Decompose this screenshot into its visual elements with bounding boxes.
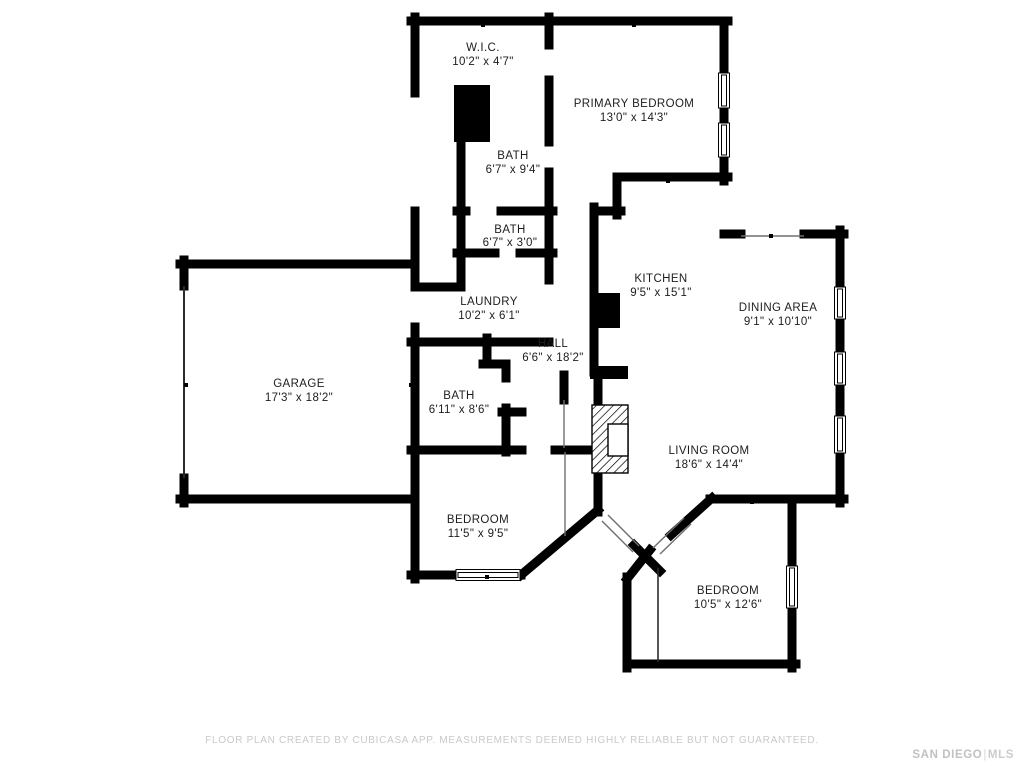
room-label-wic: W.I.C. 10'2" x 4'7"	[452, 42, 513, 68]
tick	[478, 87, 482, 91]
room-name: BATH	[497, 150, 528, 162]
room-dims: 18'6" x 14'4"	[675, 459, 743, 471]
room-dims: 11'5" x 9'5"	[448, 528, 509, 540]
fireplace-icon	[592, 405, 628, 473]
room-label-laundry: LAUNDRY 10'2" x 6'1"	[458, 296, 519, 322]
tick	[465, 450, 469, 454]
tick	[769, 234, 773, 238]
room-label-bedroom-right: BEDROOM 10'5" x 12'6"	[694, 585, 762, 611]
brand-secondary: MLS	[988, 749, 1014, 761]
room-name: GARAGE	[273, 378, 325, 390]
room-name: W.I.C.	[466, 42, 500, 54]
room-name: HALL	[538, 338, 569, 350]
wall-stub-block	[590, 366, 628, 379]
room-name: BATH	[443, 390, 474, 402]
room-name: BEDROOM	[447, 514, 509, 526]
room-dims: 13'0" x 14'3"	[600, 112, 668, 124]
tick	[485, 575, 489, 579]
room-dims: 6'7" x 9'4"	[486, 164, 541, 176]
tick	[296, 495, 300, 499]
room-label-garage: GARAGE 17'3" x 18'2"	[265, 378, 333, 404]
room-name: DINING AREA	[739, 302, 818, 314]
tick	[750, 500, 754, 504]
floor-plan-page: W.I.C. 10'2" x 4'7" PRIMARY BEDROOM 13'0…	[0, 0, 1024, 768]
room-label-primary-bedroom: PRIMARY BEDROOM 13'0" x 14'3"	[574, 98, 695, 124]
closet-block	[454, 85, 490, 142]
window	[835, 352, 846, 385]
opening-line	[608, 515, 639, 546]
tick	[478, 342, 482, 346]
room-name: BEDROOM	[697, 585, 759, 597]
room-label-dining-area: DINING AREA 9'1" x 10'10"	[739, 302, 818, 328]
room-dims: 10'2" x 4'7"	[452, 56, 513, 68]
room-dims: 6'6" x 18'2"	[522, 352, 583, 364]
wall-blocks	[454, 85, 628, 379]
footer-disclaimer: FLOOR PLAN CREATED BY CUBICASA APP. MEAS…	[0, 735, 1024, 746]
room-dims: 10'5" x 12'6"	[694, 599, 762, 611]
tick	[481, 23, 485, 27]
tick	[632, 23, 636, 27]
window	[719, 73, 730, 108]
room-label-bath-small: BATH 6'7" x 3'0"	[483, 224, 538, 249]
wall	[671, 498, 712, 535]
room-name: LAUNDRY	[460, 296, 518, 308]
wall	[521, 510, 598, 575]
room-label-bath-hall: BATH 6'11" x 8'6"	[429, 390, 490, 416]
window	[835, 287, 846, 319]
brand-logo: SAN DIEGO|MLS	[912, 749, 1014, 761]
room-dims: 9'1" x 10'10"	[744, 316, 812, 328]
tick	[296, 264, 300, 268]
room-label-kitchen: KITCHEN 9'5" x 15'1"	[630, 273, 691, 299]
room-dims: 10'2" x 6'1"	[458, 310, 519, 322]
floor-plan-svg: W.I.C. 10'2" x 4'7" PRIMARY BEDROOM 13'0…	[0, 0, 1024, 768]
tick	[666, 179, 670, 183]
tick	[409, 383, 413, 387]
tick	[708, 664, 712, 668]
room-name: KITCHEN	[634, 273, 687, 285]
room-dims: 9'5" x 15'1"	[630, 287, 691, 299]
room-label-bath-primary: BATH 6'7" x 9'4"	[486, 150, 541, 176]
room-label-living-room: LIVING ROOM 18'6" x 14'4"	[668, 445, 749, 471]
brand-primary: SAN DIEGO	[912, 749, 982, 761]
room-name: PRIMARY BEDROOM	[574, 98, 695, 110]
chimney-block	[590, 293, 620, 328]
room-dims: 6'7" x 3'0"	[483, 237, 538, 249]
room-labels: W.I.C. 10'2" x 4'7" PRIMARY BEDROOM 13'0…	[265, 42, 817, 611]
opening-line	[602, 521, 633, 552]
room-name: LIVING ROOM	[668, 445, 749, 457]
window	[835, 416, 846, 453]
room-name: BATH	[494, 224, 525, 236]
window	[787, 566, 798, 608]
room-dims: 17'3" x 18'2"	[265, 392, 333, 404]
tick	[184, 383, 188, 387]
window	[719, 123, 730, 157]
room-dims: 6'11" x 8'6"	[429, 404, 490, 416]
room-label-bedroom-left: BEDROOM 11'5" x 9'5"	[447, 514, 509, 540]
